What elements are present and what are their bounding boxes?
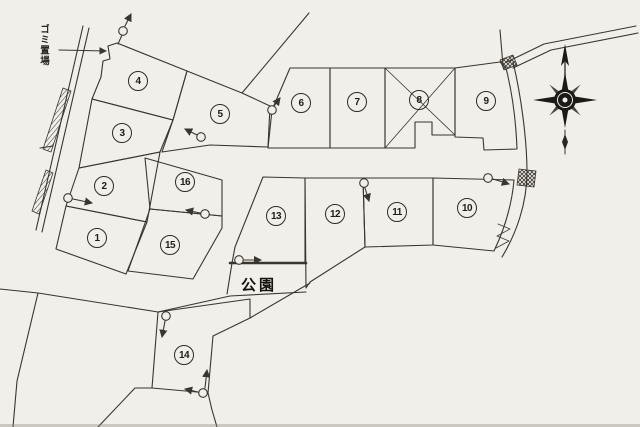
park-label: 公園 — [241, 274, 301, 295]
plot-number-10: 10 — [457, 198, 477, 218]
plot-number-12: 12 — [325, 204, 345, 224]
retaining-wall-hatch-icon — [43, 88, 71, 152]
plot-number-8: 8 — [409, 90, 429, 110]
parcel-linework — [0, 0, 640, 427]
slope-zigzag-icon — [496, 224, 510, 248]
plot-number-6: 6 — [291, 93, 311, 113]
garbage-station-label: ゴミ置場 — [36, 24, 50, 84]
plot-number-3: 3 — [112, 123, 132, 143]
utility-marker-icon — [162, 312, 171, 337]
compass-rose-icon — [533, 44, 597, 154]
utility-markers — [64, 14, 509, 397]
crossing-hatch-icon — [517, 169, 536, 187]
subdivision-lot-map: 1 2 3 4 5 6 7 8 9 10 11 12 13 14 15 16 公… — [0, 0, 640, 427]
plot-outlines-lower-row — [232, 177, 514, 288]
utility-marker-icon — [185, 129, 205, 141]
utility-marker-icon — [185, 370, 207, 397]
plot-number-15: 15 — [160, 235, 180, 255]
plot-number-2: 2 — [94, 176, 114, 196]
boundary-line — [242, 13, 309, 93]
plot-number-13: 13 — [266, 206, 286, 226]
plot-number-7: 7 — [347, 92, 367, 112]
garbage-station-arrow-icon — [59, 50, 106, 51]
plot-number-16: 16 — [175, 172, 195, 192]
utility-marker-icon — [268, 98, 280, 114]
boundary-line — [118, 35, 122, 44]
plot-number-11: 11 — [387, 202, 407, 222]
plot-number-14: 14 — [174, 345, 194, 365]
plot-number-1: 1 — [87, 228, 107, 248]
plot-number-9: 9 — [476, 91, 496, 111]
utility-marker-icon — [484, 174, 509, 184]
plot-12-outline — [305, 178, 365, 288]
retaining-wall-hatch-icon — [32, 170, 53, 214]
plot-number-4: 4 — [128, 71, 148, 91]
utility-marker-icon — [64, 194, 92, 203]
utility-marker-icon — [119, 14, 131, 35]
plot-number-5: 5 — [210, 104, 230, 124]
utility-marker-icon — [360, 179, 369, 201]
